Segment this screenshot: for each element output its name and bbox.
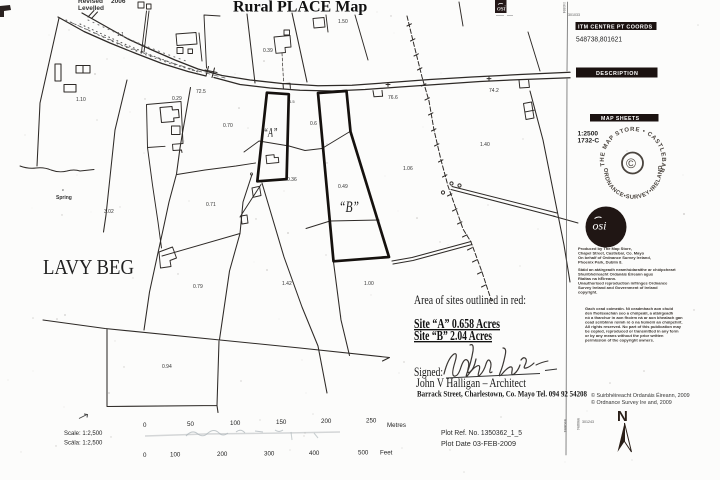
svg-text:1.42: 1.42 (282, 281, 292, 287)
svg-text:040894: 040894 (562, 2, 566, 13)
svg-text:301033: 301033 (568, 13, 580, 17)
svg-text:150: 150 (276, 419, 287, 426)
svg-text:Scála: 1:2,500: Scála: 1:2,500 (64, 441, 103, 447)
svg-text:1.10: 1.10 (76, 97, 86, 103)
svg-text:© Ordnance Survey Ire and, 200: © Ordnance Survey Ire and, 2009 (591, 399, 672, 406)
svg-text:Rural PLACE Map: Rural PLACE Map (233, 0, 367, 16)
svg-text:osi: osi (497, 4, 506, 13)
svg-text:0.49: 0.49 (338, 184, 348, 190)
svg-text:DESCRIPTION: DESCRIPTION (596, 71, 638, 77)
svg-text:Metres: Metres (387, 422, 406, 429)
svg-text:Phoenix Park, Dublin 8.: Phoenix Park, Dublin 8. (578, 260, 622, 265)
svg-text:1:2500: 1:2500 (578, 131, 599, 138)
svg-text:Scale: 1:2,500: Scale: 1:2,500 (64, 431, 103, 437)
svg-text:Levelled: Levelled (78, 5, 104, 12)
svg-text:50: 50 (187, 421, 194, 428)
svg-text:2006: 2006 (111, 0, 126, 5)
svg-text:c: c (62, 187, 64, 192)
svg-text:0.71: 0.71 (206, 202, 216, 208)
svg-text:“B”: “B” (339, 199, 359, 216)
svg-text:Spring: Spring (56, 195, 72, 201)
svg-text:osi: osi (593, 219, 607, 233)
svg-text:Revised: Revised (78, 0, 103, 5)
svg-text:0.70: 0.70 (223, 123, 233, 129)
svg-text:ITM CENTRE PT COORDS: ITM CENTRE PT COORDS (578, 24, 653, 30)
svg-text:200: 200 (217, 451, 228, 458)
svg-text:LAVY BEG: LAVY BEG (43, 255, 134, 279)
svg-text:0.29: 0.29 (172, 96, 182, 102)
svg-text:72.5: 72.5 (196, 89, 206, 95)
svg-text:N: N (617, 408, 628, 425)
svg-text:1.50: 1.50 (338, 19, 348, 25)
svg-text:548738,801621: 548738,801621 (576, 35, 622, 44)
svg-text:© Suirbhéireacht Ordanáis Éire: © Suirbhéireacht Ordanáis Éireann, 2009 (591, 392, 690, 399)
svg-text:990894: 990894 (563, 419, 568, 433)
svg-text:0: 0 (143, 422, 147, 429)
svg-text:76.6: 76.6 (388, 95, 398, 101)
svg-text:0.6: 0.6 (310, 121, 317, 127)
svg-text:250: 250 (366, 418, 377, 425)
svg-text:1732-C: 1732-C (578, 138, 600, 145)
svg-text:©: © (626, 156, 636, 171)
svg-text:500: 500 (358, 450, 369, 457)
svg-text:200: 200 (321, 418, 332, 425)
svg-text:Feet: Feet (380, 450, 393, 457)
svg-text:3.02: 3.02 (104, 209, 114, 215)
svg-text:301243: 301243 (582, 420, 594, 424)
svg-text:“A”: “A” (264, 125, 278, 140)
svg-text:990894: 990894 (576, 418, 580, 430)
svg-text:Plot Ref. No. 1350362_1_5: Plot Ref. No. 1350362_1_5 (441, 430, 522, 437)
svg-text:Plot Date 03-FEB-2009: Plot Date 03-FEB-2009 (441, 441, 516, 448)
svg-text:Site “B” 2.04 Acres: Site “B” 2.04 Acres (414, 328, 492, 343)
svg-text:permission of the copyright ow: permission of the copyright owners. (585, 338, 654, 343)
svg-text:copyright.: copyright. (578, 290, 597, 295)
svg-text:0.39: 0.39 (263, 48, 273, 54)
svg-text:100: 100 (230, 420, 241, 427)
svg-text:0: 0 (143, 452, 147, 459)
svg-text:74.2: 74.2 (489, 88, 499, 94)
svg-text:1.00: 1.00 (364, 281, 374, 287)
svg-text:4.5: 4.5 (289, 99, 295, 104)
svg-text:Area of sites outlined in red:: Area of sites outlined in red: (414, 292, 526, 307)
svg-text:300: 300 (264, 451, 275, 458)
svg-text:Barrack Street, Charlestown, C: Barrack Street, Charlestown, Co. Mayo Te… (417, 390, 587, 399)
svg-text:John V Halligan – Architect: John V Halligan – Architect (416, 376, 526, 390)
svg-text:MAP SHEETS: MAP SHEETS (601, 116, 640, 122)
svg-text:0.36: 0.36 (287, 177, 297, 183)
svg-text:0.94: 0.94 (162, 364, 172, 370)
svg-text:100: 100 (170, 452, 181, 459)
svg-text:1.1: 1.1 (117, 32, 124, 38)
svg-text:400: 400 (309, 450, 320, 457)
svg-text:1.40: 1.40 (480, 142, 490, 148)
svg-text:1.06: 1.06 (403, 166, 413, 172)
svg-text:0.79: 0.79 (193, 284, 203, 290)
